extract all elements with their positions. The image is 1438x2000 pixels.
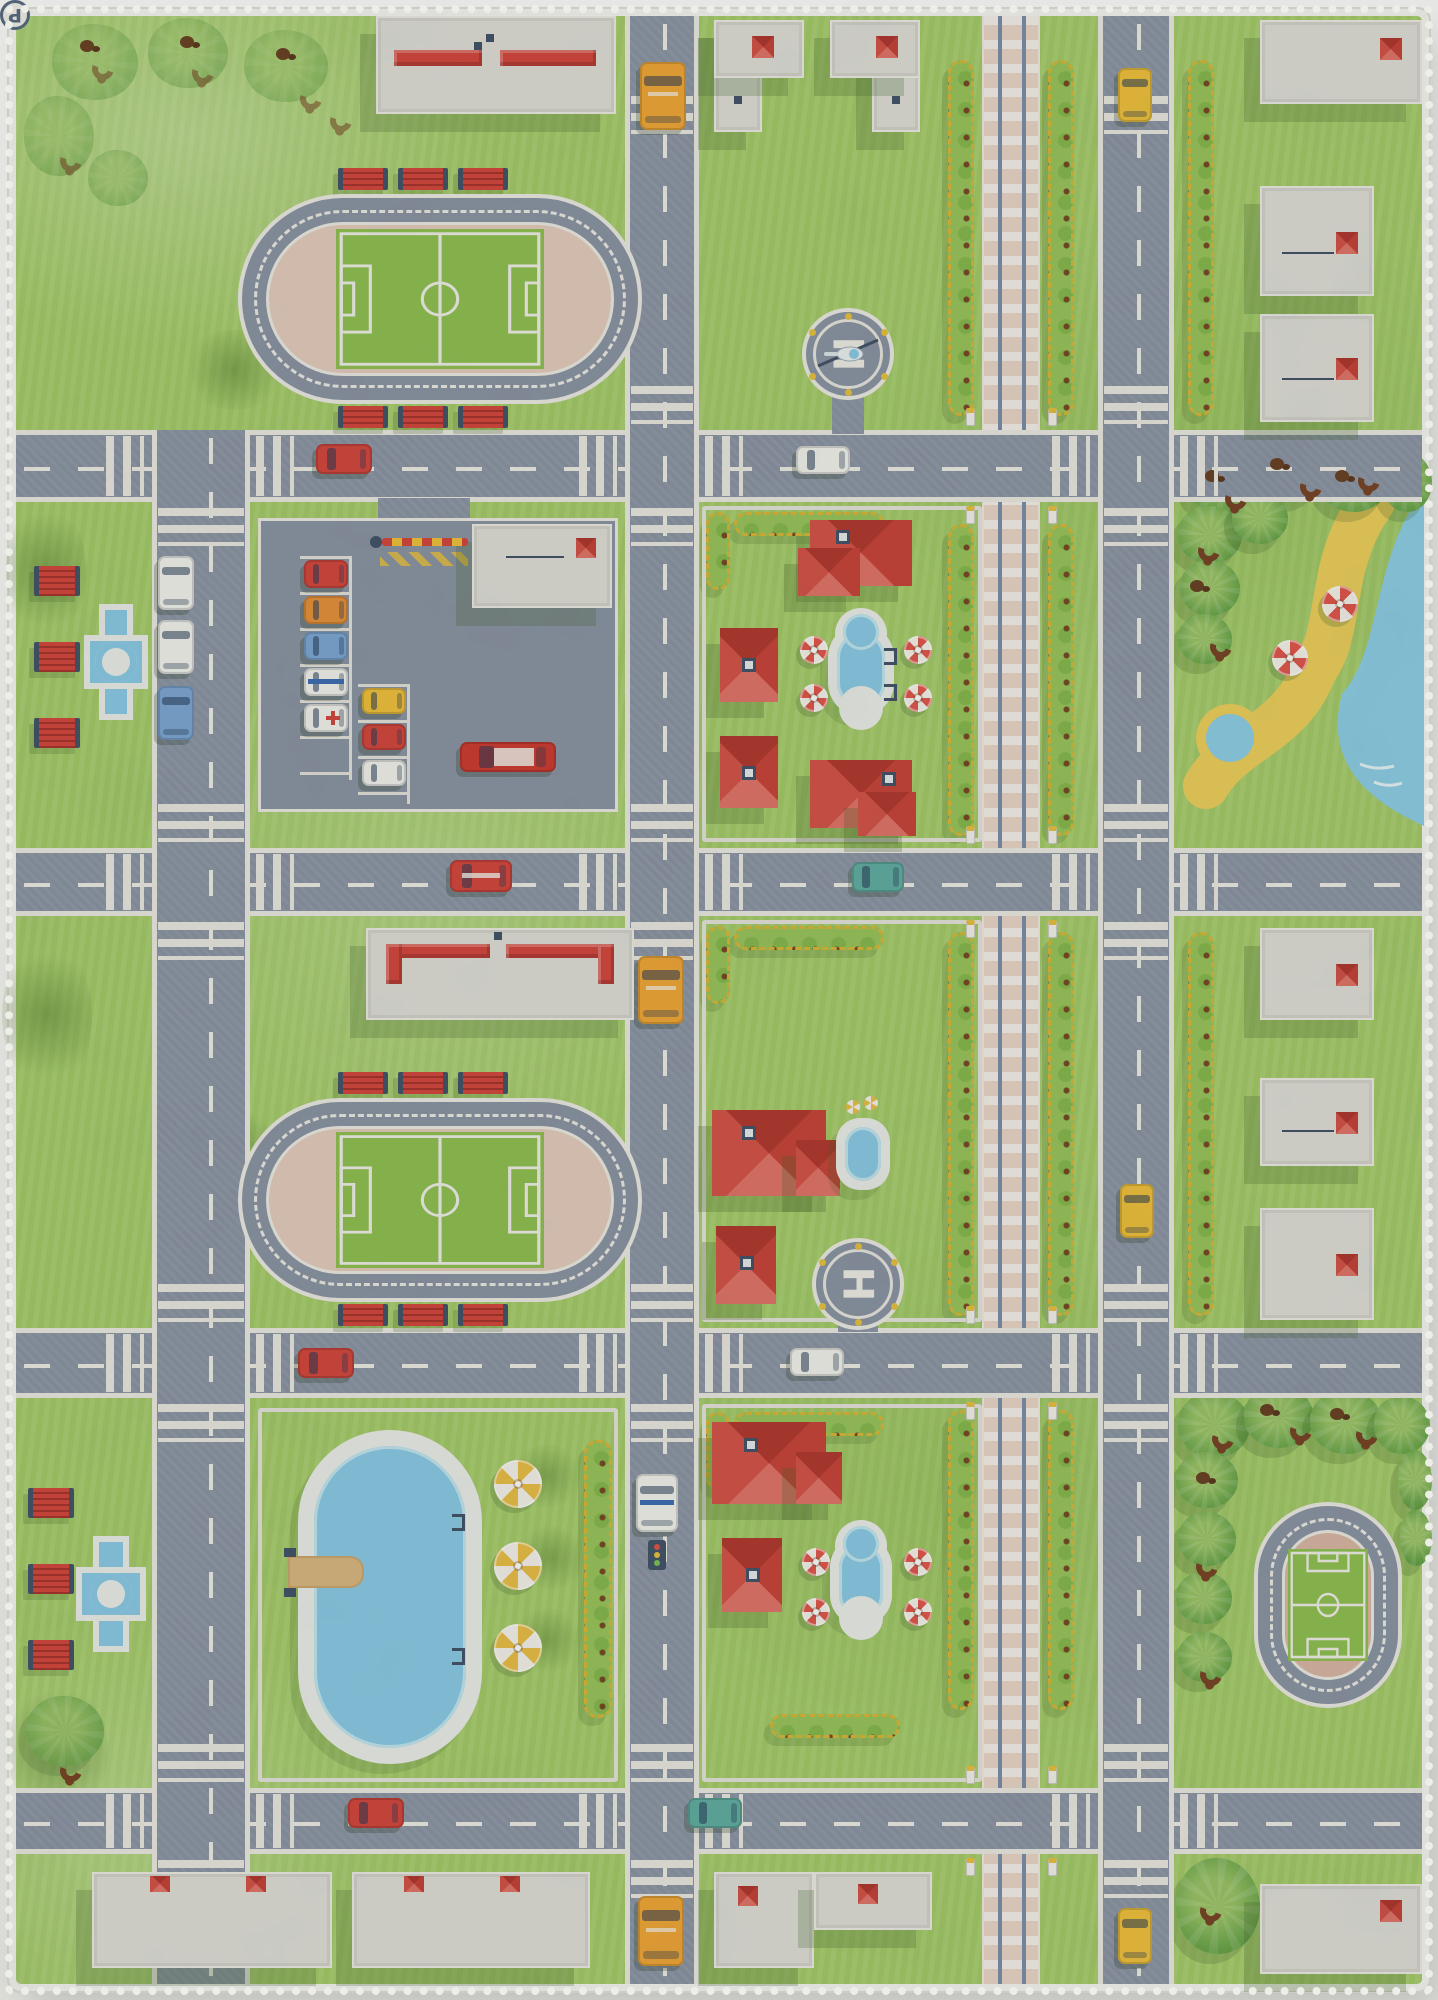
stadium-bench <box>338 168 388 190</box>
chimney <box>882 772 896 786</box>
red-chimney <box>246 1876 266 1892</box>
chimney <box>742 1126 756 1140</box>
pool-ladder <box>452 1514 465 1531</box>
palm-tree-icon <box>88 150 148 206</box>
soccer-pitch <box>336 229 544 369</box>
crossing-gate-post <box>1048 506 1057 524</box>
parasol-red-icon <box>1272 640 1308 676</box>
parked-van <box>158 620 194 674</box>
red-car <box>298 1348 354 1378</box>
red-roof-skylight <box>576 538 596 558</box>
helipad-lights <box>845 313 852 320</box>
parking-sign-letter: P <box>8 4 22 26</box>
parasol-yellow-icon <box>494 1460 542 1508</box>
stadium-bench <box>398 1072 448 1094</box>
red-bus <box>450 860 512 892</box>
park-bench <box>28 1488 74 1518</box>
parasol-red-icon <box>904 1598 932 1626</box>
coconut-icon <box>1335 470 1349 482</box>
play-rug-photo: H H <box>0 0 1438 2000</box>
parasol-yellow-icon <box>494 1542 542 1590</box>
parasol-yellow-icon <box>494 1624 542 1672</box>
crosswalk <box>579 1794 617 1848</box>
diving-board <box>288 1556 364 1588</box>
crossing-gate-post <box>966 506 975 524</box>
crosswalk <box>631 804 693 842</box>
police-car <box>304 668 348 696</box>
palm-tree-icon <box>1400 1510 1432 1566</box>
crosswalk <box>158 1404 244 1442</box>
stadium-bench <box>338 406 388 428</box>
red-roof-skylight <box>752 36 774 58</box>
crosswalk <box>1052 436 1090 496</box>
stadium-bench <box>338 1072 388 1094</box>
red-roof-house <box>796 1140 840 1196</box>
pool-ladder <box>884 684 897 701</box>
crossing-gate-post <box>966 1766 975 1784</box>
crosswalk <box>1052 1794 1090 1848</box>
garden-pool <box>836 1118 890 1190</box>
red-awning <box>598 944 614 984</box>
chimney <box>740 1256 754 1270</box>
bus-roof-stripe <box>646 986 676 990</box>
red-awning <box>386 944 402 984</box>
roof-vent <box>474 42 482 50</box>
red-roof-skylight <box>858 1884 878 1904</box>
diving-board-clamp <box>284 1548 296 1557</box>
red-chimney <box>404 1876 424 1892</box>
palm-tree-icon <box>26 1696 104 1766</box>
park-bench <box>34 566 80 596</box>
helipad-access <box>832 394 864 434</box>
coconut-icon <box>1270 458 1284 470</box>
stadium-bench <box>458 406 508 428</box>
red-cross-icon <box>331 711 335 725</box>
mini-stadium <box>1254 1502 1402 1708</box>
fountain-center <box>90 1573 132 1615</box>
park-bench <box>34 642 80 672</box>
red-roof-skylight <box>738 1886 758 1906</box>
coconut-icon <box>1196 1472 1210 1484</box>
crosswalk <box>1104 804 1168 842</box>
coconut-icon <box>80 40 94 52</box>
parked-car <box>304 560 348 588</box>
crossing-gate-post <box>966 826 975 844</box>
pool-water <box>845 1127 881 1181</box>
park-bench <box>28 1640 74 1670</box>
taxi <box>1120 1184 1154 1238</box>
crosswalk <box>256 1334 294 1392</box>
red-awning <box>500 50 596 66</box>
roof-vent <box>734 96 742 104</box>
roof-vent <box>486 34 494 42</box>
crosswalk <box>158 922 244 960</box>
stadium-bench <box>398 168 448 190</box>
park-bench <box>28 1564 74 1594</box>
crosswalk <box>256 1794 294 1848</box>
hedgerow <box>1188 60 1214 416</box>
hedgerow <box>948 60 974 416</box>
crosswalk <box>106 854 144 910</box>
crosswalk <box>1104 1404 1168 1442</box>
taxi <box>1118 68 1152 122</box>
crosswalk <box>1104 386 1168 424</box>
stadium-running-track <box>238 1098 642 1302</box>
pool-ladder <box>884 648 897 665</box>
crosswalk <box>256 854 294 910</box>
palm-tree-icon <box>1374 1396 1430 1454</box>
stadium-bench <box>458 1072 508 1094</box>
parasol-red-icon <box>802 1598 830 1626</box>
crosswalk <box>631 1404 693 1442</box>
crosswalk <box>1104 1860 1168 1898</box>
crosswalk <box>1104 1284 1168 1322</box>
parked-taxi <box>362 688 406 714</box>
coconut-icon <box>1330 1408 1344 1420</box>
palm-tree-icon <box>1398 1450 1432 1510</box>
school-bus <box>640 62 686 130</box>
crossing-gate-post <box>1048 826 1057 844</box>
pool-water <box>314 1446 466 1748</box>
crosswalk <box>1104 1744 1168 1782</box>
crossing-gate-post <box>966 1402 975 1420</box>
parked-car <box>304 596 348 624</box>
parked-car <box>304 632 348 660</box>
crosswalk <box>106 436 144 496</box>
ambulance <box>304 704 348 732</box>
crosswalk <box>631 922 693 960</box>
police-stripe <box>308 679 344 684</box>
bus-roof-stripe <box>648 92 678 96</box>
helipad-letter: H <box>837 1266 879 1301</box>
roof-pipe <box>1282 252 1334 254</box>
hedgerow <box>1048 524 1074 836</box>
apartment-block <box>352 1872 590 1968</box>
crossing-gate-post <box>966 408 975 426</box>
corner-building <box>1260 1884 1422 1974</box>
crosswalk <box>106 1334 144 1392</box>
parking-sign: P <box>0 0 30 30</box>
stadium-bench <box>398 406 448 428</box>
red-roof-skylight <box>1336 964 1358 986</box>
pool-ladder <box>452 1648 465 1665</box>
crossing-gate-post <box>966 1858 975 1876</box>
red-chimney <box>500 1876 520 1892</box>
red-roof-house <box>796 1452 842 1504</box>
red-roof-skylight <box>1336 1254 1358 1276</box>
beach-ball-icon <box>864 1096 878 1110</box>
parasol-red-icon <box>904 1548 932 1576</box>
crosswalk <box>1052 1334 1090 1392</box>
parasol-red-icon <box>802 1548 830 1576</box>
fire-truck <box>460 742 556 772</box>
apartment-block <box>366 928 634 1020</box>
soccer-pitch <box>336 1132 544 1268</box>
chimney <box>836 530 850 544</box>
roof-pipe <box>506 556 564 558</box>
crosswalk <box>705 854 743 910</box>
pool-water <box>837 633 885 707</box>
red-roof-house <box>798 548 860 596</box>
barrier-pivot <box>370 536 382 548</box>
crosswalk <box>1104 508 1168 546</box>
crosswalk <box>631 508 693 546</box>
roof-vent <box>892 96 900 104</box>
crossing-gate-post <box>1048 408 1057 426</box>
roof-pipe <box>1282 1130 1334 1132</box>
red-car <box>348 1798 404 1828</box>
crossing-gate-post <box>1048 1402 1057 1420</box>
fountain-center <box>95 641 137 683</box>
palm-tree-icon <box>148 18 228 88</box>
red-roof-skylight <box>1336 1112 1358 1134</box>
tree-shadow <box>2 940 92 1090</box>
stadium-bench <box>338 1304 388 1326</box>
parasol-red-icon <box>800 684 828 712</box>
stadium-bench <box>398 1304 448 1326</box>
hedgerow <box>1188 932 1214 1316</box>
coconut-icon <box>180 36 194 48</box>
helipad-lights <box>855 1243 862 1250</box>
crosswalk <box>106 1794 144 1848</box>
white-car <box>790 1348 844 1376</box>
helipad: H <box>812 1238 904 1330</box>
crosswalk <box>1104 922 1168 960</box>
parked-van <box>362 760 406 786</box>
red-roof-house <box>858 792 916 836</box>
corner-building <box>1260 20 1422 104</box>
palm-tree-icon <box>24 96 94 176</box>
teal-truck <box>688 1798 742 1828</box>
parking-office <box>472 524 612 608</box>
parking-entrance <box>378 498 470 520</box>
chimney <box>746 1568 760 1582</box>
red-roof-skylight <box>1380 38 1402 60</box>
crosswalk <box>579 1334 617 1392</box>
lane-dashes <box>1137 24 1141 1976</box>
parasol-red-icon <box>904 636 932 664</box>
coconut-icon <box>1260 1404 1274 1416</box>
crosswalk <box>631 1860 693 1898</box>
palm-tree-icon <box>1180 560 1240 616</box>
fire-truck-band <box>494 748 534 766</box>
parasol-red-icon <box>904 684 932 712</box>
pool-water <box>839 1545 883 1617</box>
crosswalk <box>158 1284 244 1322</box>
red-roof-skylight <box>1336 232 1358 254</box>
roof-pipe <box>1282 378 1334 380</box>
police-car <box>636 1474 678 1532</box>
chimney <box>744 1438 758 1452</box>
school-bus <box>638 956 684 1024</box>
parked-car <box>362 724 406 750</box>
red-car <box>316 444 372 474</box>
park-bench <box>34 718 80 748</box>
crossing-gate-post <box>966 1306 975 1324</box>
crosswalk <box>158 804 244 842</box>
crosswalk <box>1180 1334 1218 1392</box>
stadium-bench <box>458 1304 508 1326</box>
garden-pool <box>830 1536 892 1626</box>
crosswalk <box>1180 436 1218 496</box>
coconut-icon <box>276 48 290 60</box>
road-vertical-right <box>1098 16 1174 1984</box>
helicopter-icon <box>812 336 884 372</box>
chimney <box>742 766 756 780</box>
diving-board-clamp <box>284 1588 296 1597</box>
bus-stripe <box>462 873 500 878</box>
red-roof-skylight <box>876 36 898 58</box>
hedgerow <box>1048 1410 1074 1710</box>
roof-vent <box>494 932 502 940</box>
teal-truck <box>852 862 904 892</box>
l-shaped-building <box>830 20 920 78</box>
crossing-gate-post <box>1048 920 1057 938</box>
hatched-zone <box>380 552 468 566</box>
soccer-pitch <box>1288 1549 1368 1661</box>
stadium-running-track <box>238 194 642 404</box>
parasol-red-icon <box>1322 586 1358 622</box>
red-chimney <box>150 1876 170 1892</box>
parasol-red-icon <box>800 636 828 664</box>
crosswalk <box>1180 1794 1218 1848</box>
bus-roof-stripe <box>646 1928 676 1932</box>
crosswalk <box>579 436 617 496</box>
railroad-track <box>982 16 1040 1984</box>
park-fountain <box>76 1536 146 1652</box>
hedgerow <box>1048 932 1074 1316</box>
beach-ball-icon <box>846 1100 860 1114</box>
chimney <box>742 658 756 672</box>
coconut-icon <box>1190 580 1204 592</box>
parked-van <box>158 556 194 610</box>
barrier-arm <box>382 538 468 546</box>
crosswalk <box>631 1744 693 1782</box>
garden-pool <box>828 624 894 716</box>
parked-van <box>158 686 194 740</box>
crossing-gate-post <box>1048 1858 1057 1876</box>
big-swimming-pool <box>298 1430 482 1764</box>
taxi <box>1118 1908 1152 1964</box>
crosswalk <box>579 854 617 910</box>
police-stripe <box>640 1500 674 1505</box>
traffic-signal <box>648 1540 666 1570</box>
crosswalk <box>158 1744 244 1782</box>
red-awning <box>394 50 482 66</box>
crossing-gate-post <box>1048 1306 1057 1324</box>
hedgerow <box>1048 60 1074 416</box>
l-shaped-building <box>714 1872 814 1968</box>
crosswalk <box>158 508 244 546</box>
crosswalk <box>1180 854 1218 910</box>
crosswalk <box>256 436 294 496</box>
apartment-block <box>92 1872 332 1968</box>
crosswalk <box>705 1334 743 1392</box>
crosswalk <box>1052 854 1090 910</box>
crossing-gate-post <box>1048 1766 1057 1784</box>
school-bus <box>638 1896 684 1966</box>
red-roof-skylight <box>1336 358 1358 380</box>
red-roof-skylight <box>1380 1900 1402 1922</box>
park-fountain <box>84 604 148 720</box>
white-car <box>796 446 850 474</box>
crosswalk <box>705 436 743 496</box>
palm-tree-icon <box>1178 1392 1250 1458</box>
crossing-gate-post <box>966 920 975 938</box>
stadium-bench <box>458 168 508 190</box>
